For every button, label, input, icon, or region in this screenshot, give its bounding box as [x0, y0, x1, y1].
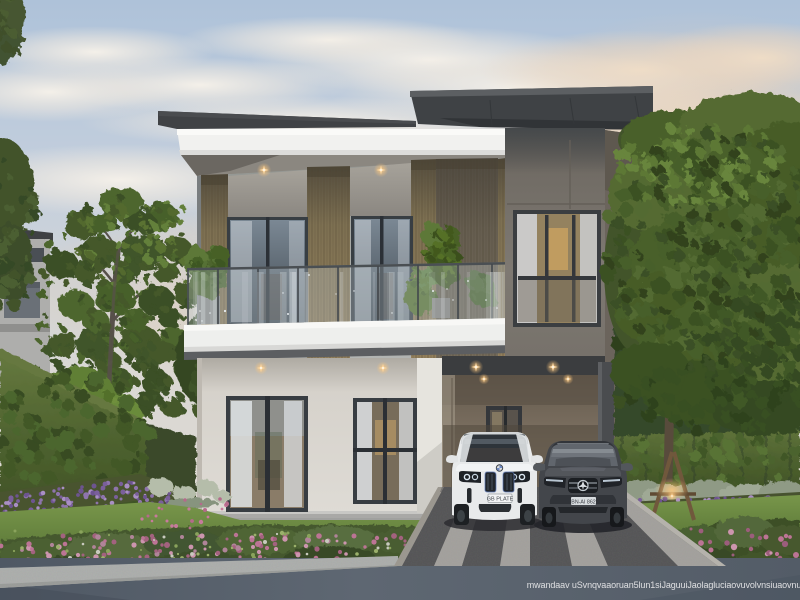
svg-text:GB PLATE: GB PLATE	[487, 497, 514, 503]
svg-text:BN-AI 862: BN-AI 862	[571, 500, 595, 506]
svg-text:mwandaav uSvnqvaaoruan5lun1siJ: mwandaav uSvnqvaaoruan5lun1siJaguuiJaola…	[527, 580, 800, 590]
